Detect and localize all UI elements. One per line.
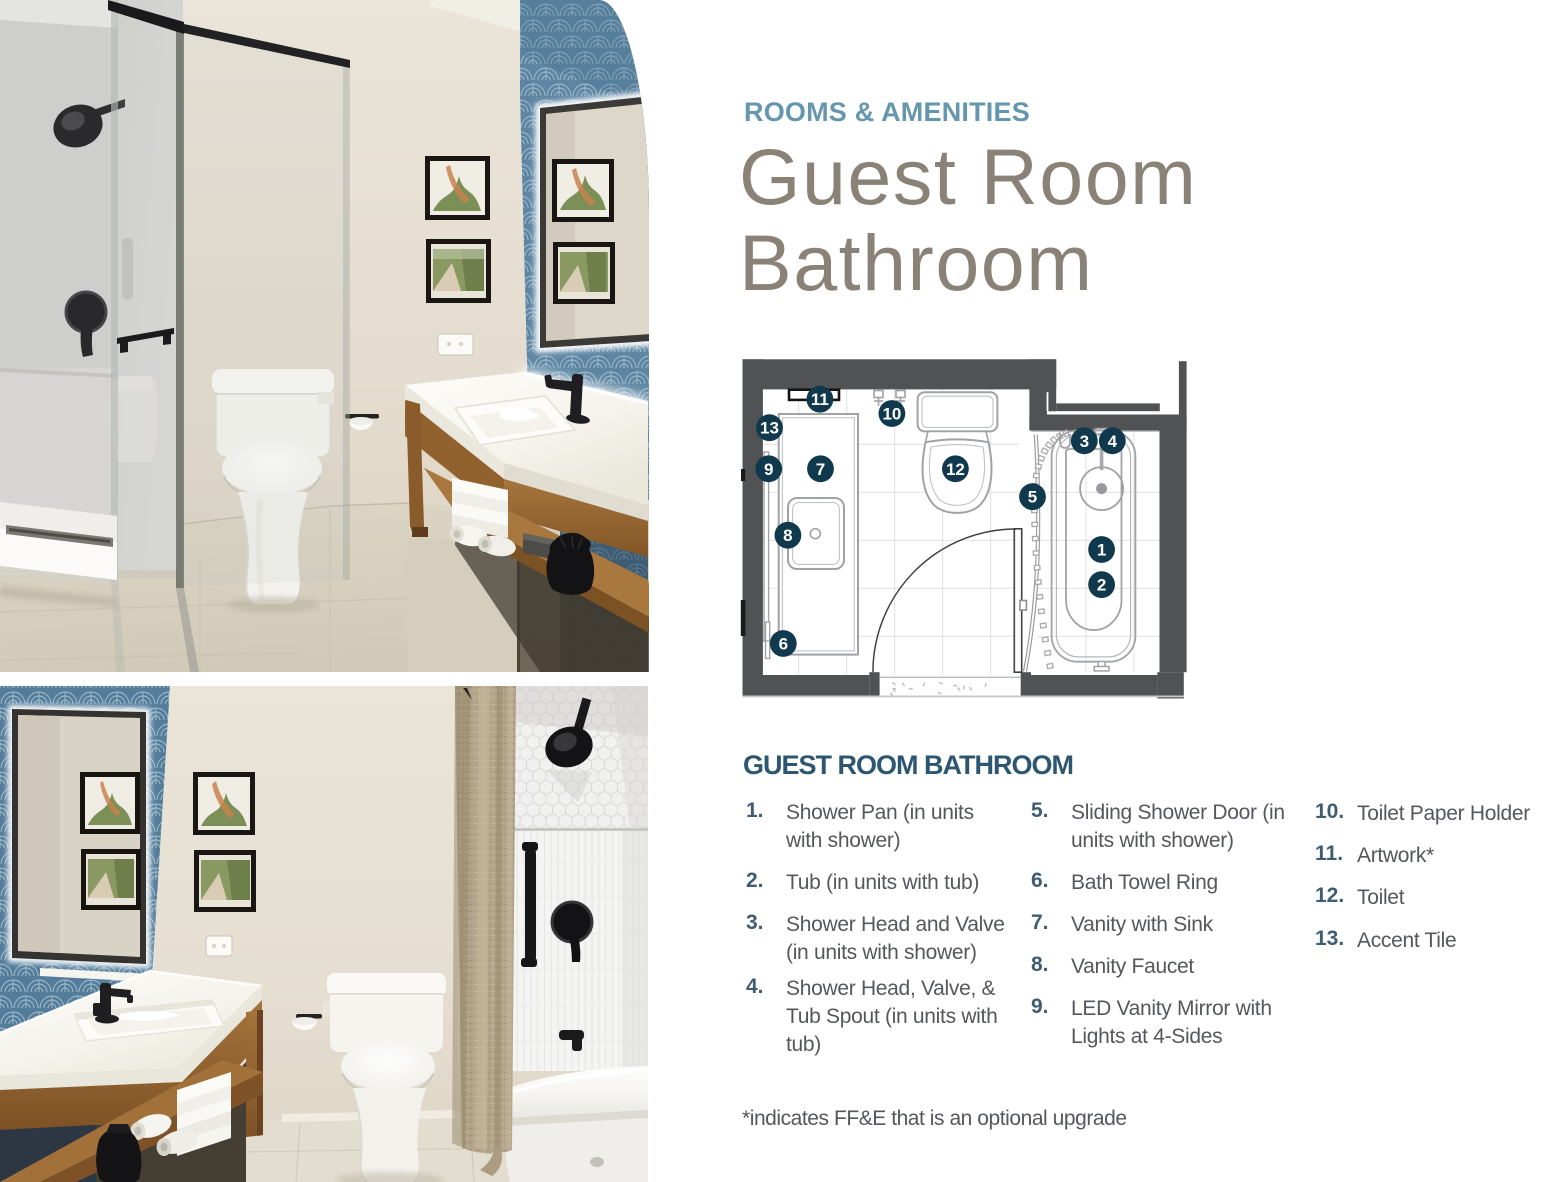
svg-text:12: 12 bbox=[946, 460, 965, 479]
svg-text:2: 2 bbox=[1097, 576, 1106, 595]
svg-text:3: 3 bbox=[1080, 432, 1089, 451]
svg-text:10: 10 bbox=[882, 405, 901, 424]
svg-text:13: 13 bbox=[760, 419, 779, 438]
svg-text:4: 4 bbox=[1108, 432, 1118, 451]
svg-text:7: 7 bbox=[816, 460, 825, 479]
svg-text:5: 5 bbox=[1028, 488, 1037, 507]
svg-text:11: 11 bbox=[811, 390, 829, 409]
svg-text:9: 9 bbox=[764, 460, 773, 479]
svg-text:6: 6 bbox=[779, 635, 788, 654]
svg-text:1: 1 bbox=[1097, 541, 1106, 560]
svg-text:8: 8 bbox=[783, 526, 792, 545]
